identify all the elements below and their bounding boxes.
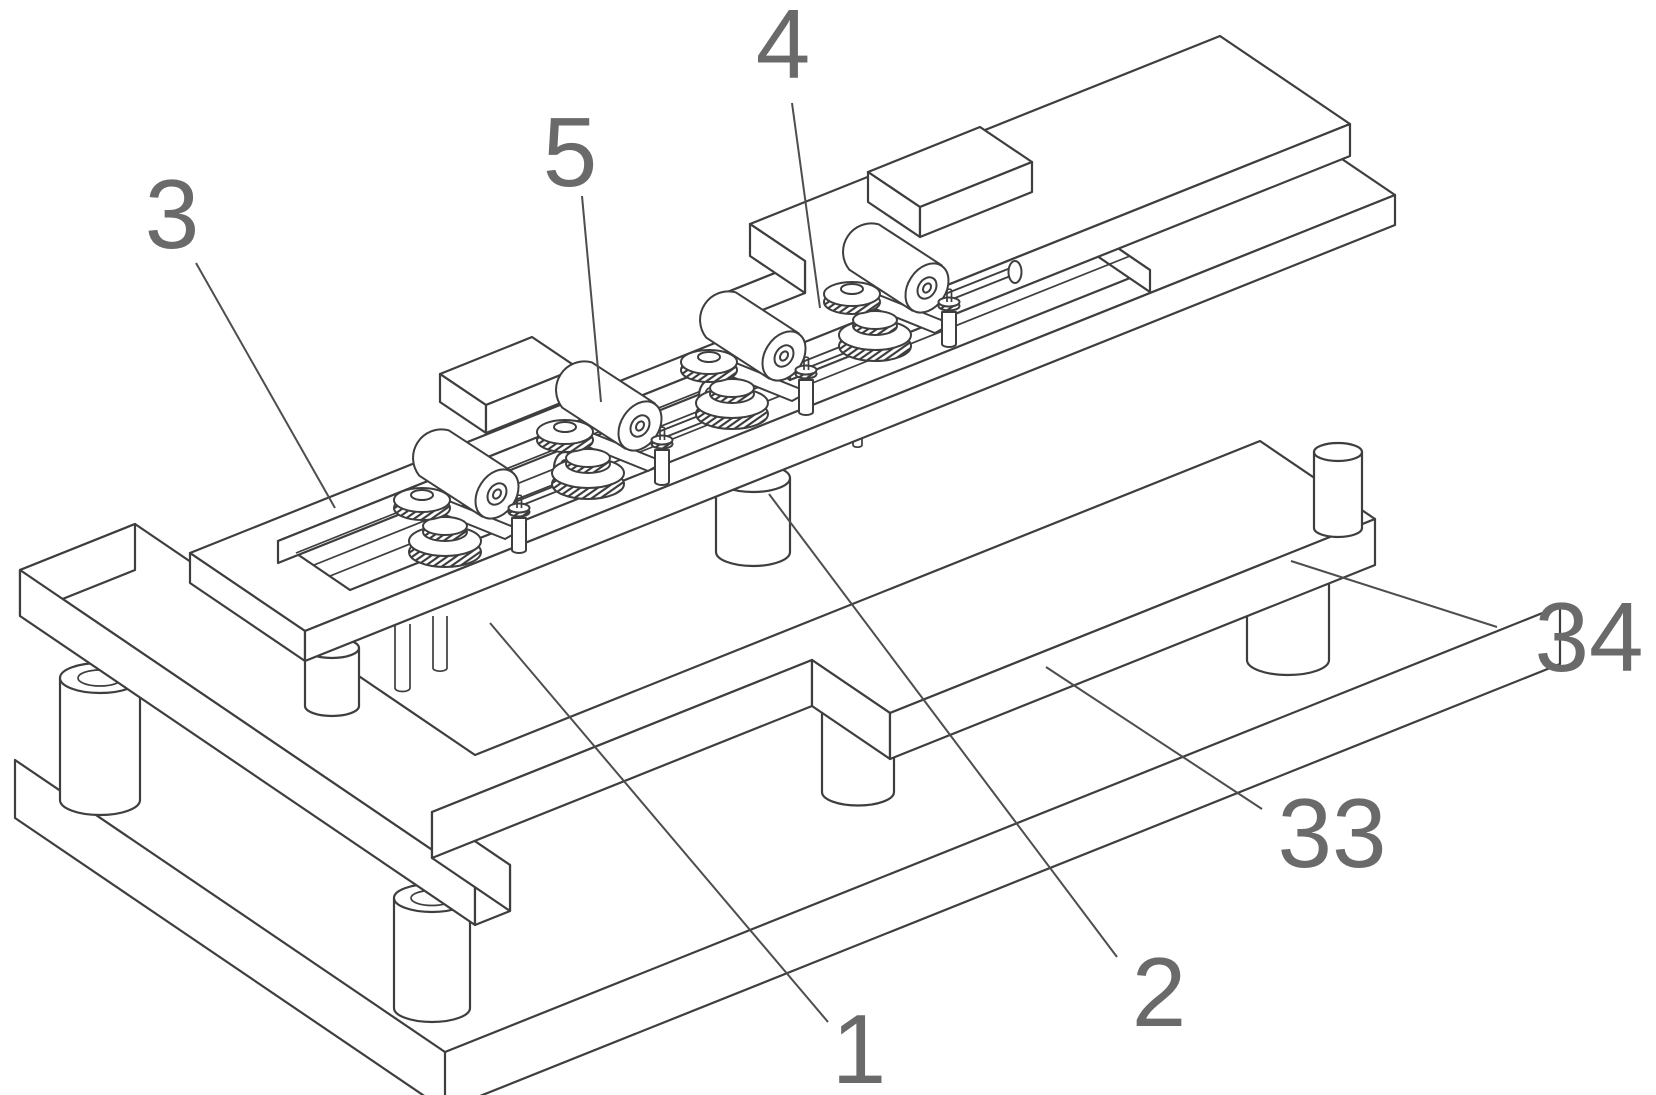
part-label-33: 33 bbox=[1277, 778, 1386, 888]
part-label-3: 3 bbox=[145, 159, 200, 269]
spacer-stub-right bbox=[1314, 443, 1362, 537]
part-label-4: 4 bbox=[756, 0, 811, 99]
part-label-2: 2 bbox=[1132, 937, 1187, 1047]
leader-line-rail-plate bbox=[196, 263, 335, 508]
part-label-34: 34 bbox=[1534, 582, 1643, 692]
guide-pin bbox=[433, 616, 447, 671]
patent-figure: 354123334 bbox=[0, 0, 1656, 1095]
support-frame bbox=[20, 441, 1375, 925]
part-label-5: 5 bbox=[543, 97, 598, 207]
guide-pin bbox=[395, 624, 410, 692]
part-label-1: 1 bbox=[832, 994, 887, 1095]
isometric-assembly-drawing: 354123334 bbox=[0, 0, 1656, 1095]
